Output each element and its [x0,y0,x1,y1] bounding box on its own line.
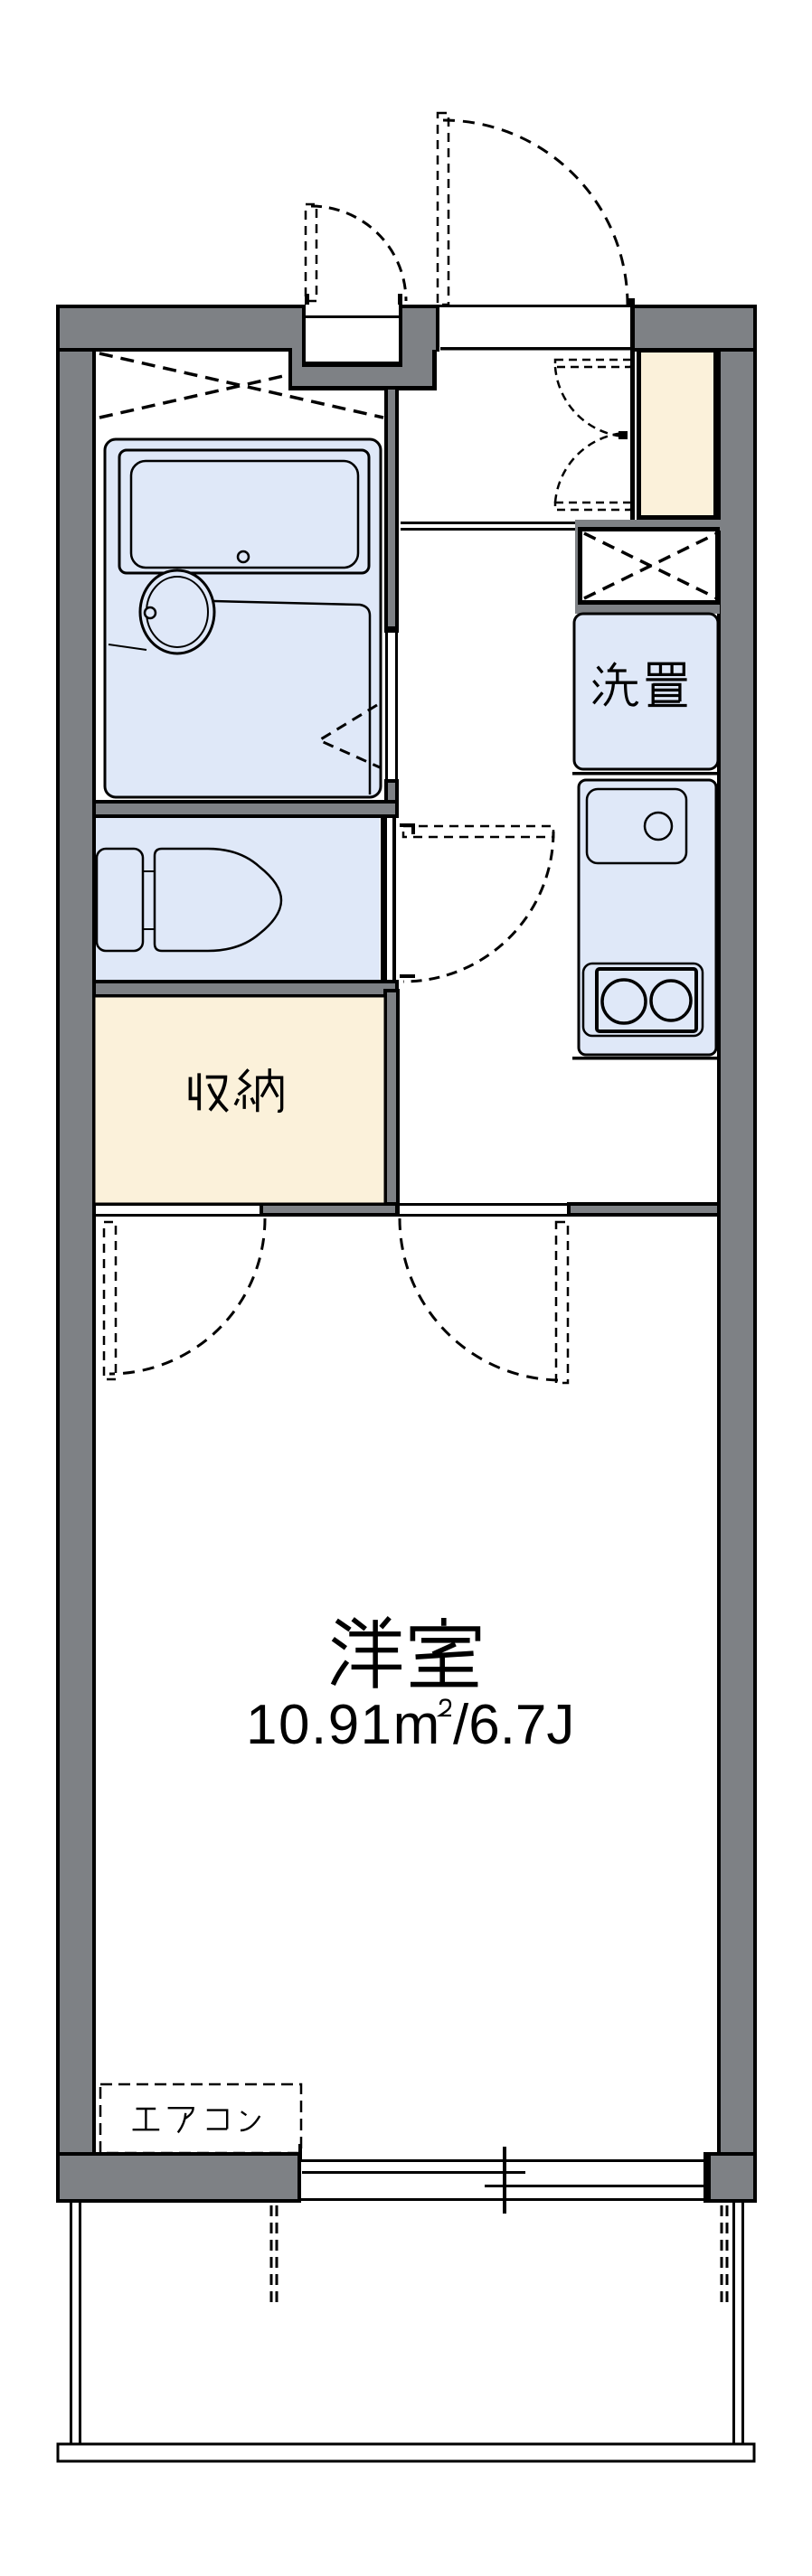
svg-text:10.91m: 10.91m [246,1694,441,1756]
svg-text:/6.7J: /6.7J [453,1694,574,1756]
